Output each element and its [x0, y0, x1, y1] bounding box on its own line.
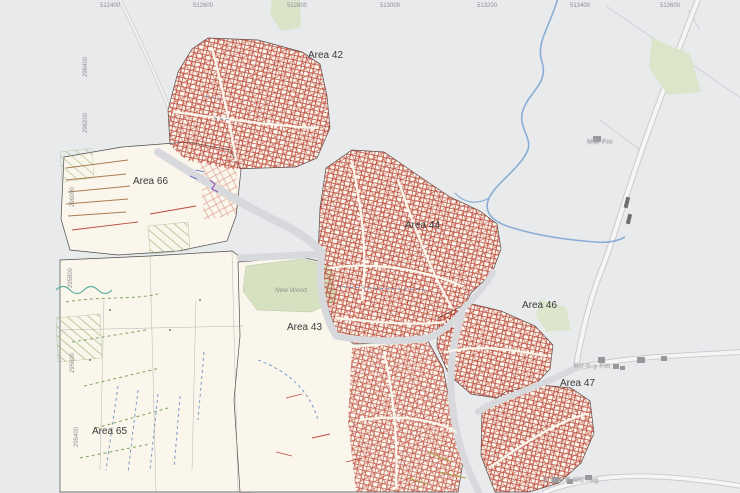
area-label-43: Area 43	[287, 323, 322, 333]
farm-name-label-right: Rd-h-y Fm	[574, 363, 610, 370]
area-label-44: Area 44	[405, 221, 440, 231]
area-label-46: Area 46	[522, 301, 557, 311]
easting-tick: 512600	[193, 3, 213, 9]
easting-tick: 513200	[477, 3, 497, 9]
northing-tick: 296400	[83, 57, 89, 77]
easting-tick: 513400	[570, 3, 590, 9]
area-label-66: Area 66	[133, 177, 168, 187]
northing-tick: 296000	[70, 187, 76, 207]
wood-name-label: New Wood	[275, 288, 307, 295]
farm-name-label-bottom: B mm R-MC rug	[543, 477, 599, 484]
northing-tick: 296200	[83, 113, 89, 133]
farm-name-label-top: MW Fm	[587, 139, 613, 146]
easting-tick: 513000	[380, 3, 400, 9]
easting-tick: 512400	[100, 3, 120, 9]
map-canvas	[0, 0, 740, 493]
survey-map-image[interactable]: 512400 512600 512800 513000 513200 51340…	[0, 0, 740, 493]
area-label-65: Area 65	[92, 427, 127, 437]
northing-tick: 295600	[70, 353, 76, 373]
area-label-42: Area 42	[308, 51, 343, 61]
area-label-47: Area 47	[560, 379, 595, 389]
easting-tick: 513600	[660, 3, 680, 9]
northing-tick: 295400	[74, 427, 80, 447]
northing-tick: 295800	[68, 268, 74, 288]
easting-tick: 512800	[287, 3, 307, 9]
